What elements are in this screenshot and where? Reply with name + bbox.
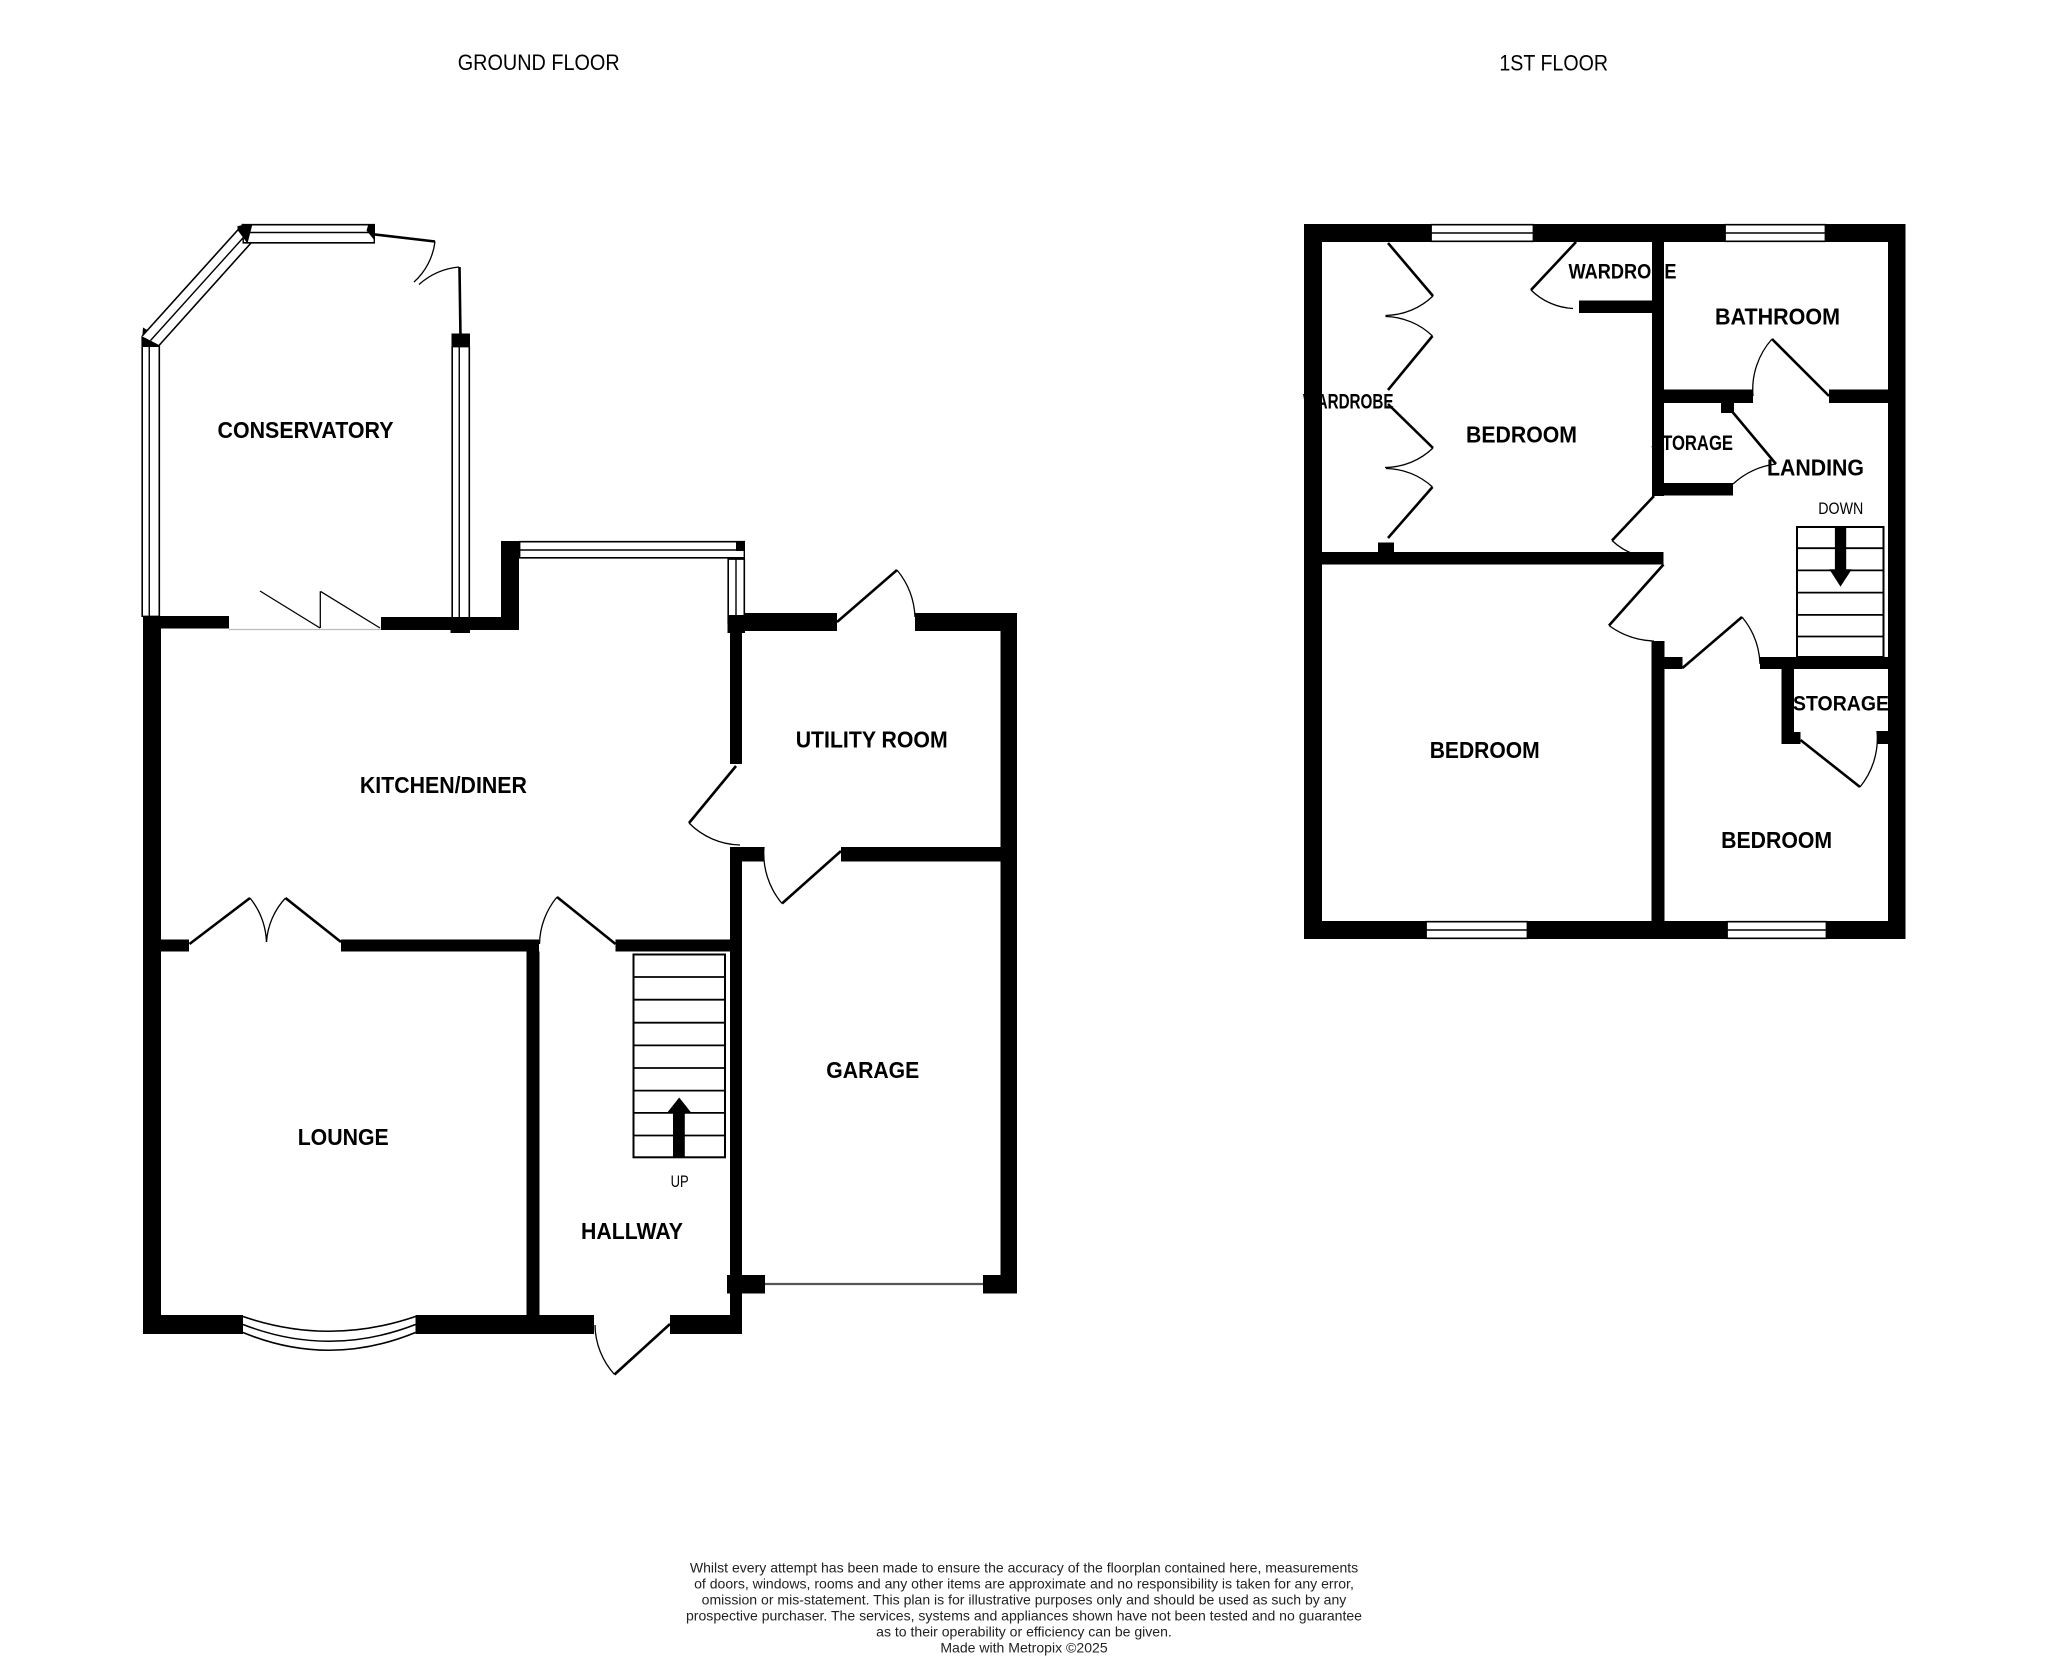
svg-text:BEDROOM: BEDROOM [1430,737,1540,763]
svg-text:UP: UP [671,1172,689,1191]
svg-text:HALLWAY: HALLWAY [581,1218,683,1244]
svg-text:Whilst every attempt has been: Whilst every attempt has been made to en… [690,1560,1358,1576]
svg-text:KITCHEN/DINER: KITCHEN/DINER [360,772,527,798]
svg-text:prospective purchaser. The ser: prospective purchaser. The services, sys… [686,1608,1362,1624]
svg-text:GROUND FLOOR: GROUND FLOOR [458,50,620,75]
svg-text:GARAGE: GARAGE [826,1057,919,1083]
svg-text:DOWN: DOWN [1818,499,1863,518]
svg-text:STORAGE: STORAGE [1793,693,1889,716]
svg-text:as to their operability or eff: as to their operability or efficiency ca… [876,1624,1172,1640]
svg-text:omission or mis-statement. Thi: omission or mis-statement. This plan is … [702,1592,1347,1608]
svg-text:LOUNGE: LOUNGE [298,1124,389,1150]
svg-text:BATHROOM: BATHROOM [1715,303,1840,329]
svg-text:BEDROOM: BEDROOM [1466,422,1577,448]
svg-text:of doors, windows, rooms and a: of doors, windows, rooms and any other i… [694,1576,1354,1592]
svg-text:1ST FLOOR: 1ST FLOOR [1499,51,1608,76]
svg-text:UTILITY ROOM: UTILITY ROOM [796,727,948,753]
svg-text:CONSERVATORY: CONSERVATORY [218,417,394,443]
svg-text:BEDROOM: BEDROOM [1721,827,1832,853]
svg-text:LANDING: LANDING [1767,455,1864,481]
svg-text:Made with Metropix ©2025: Made with Metropix ©2025 [940,1640,1107,1656]
